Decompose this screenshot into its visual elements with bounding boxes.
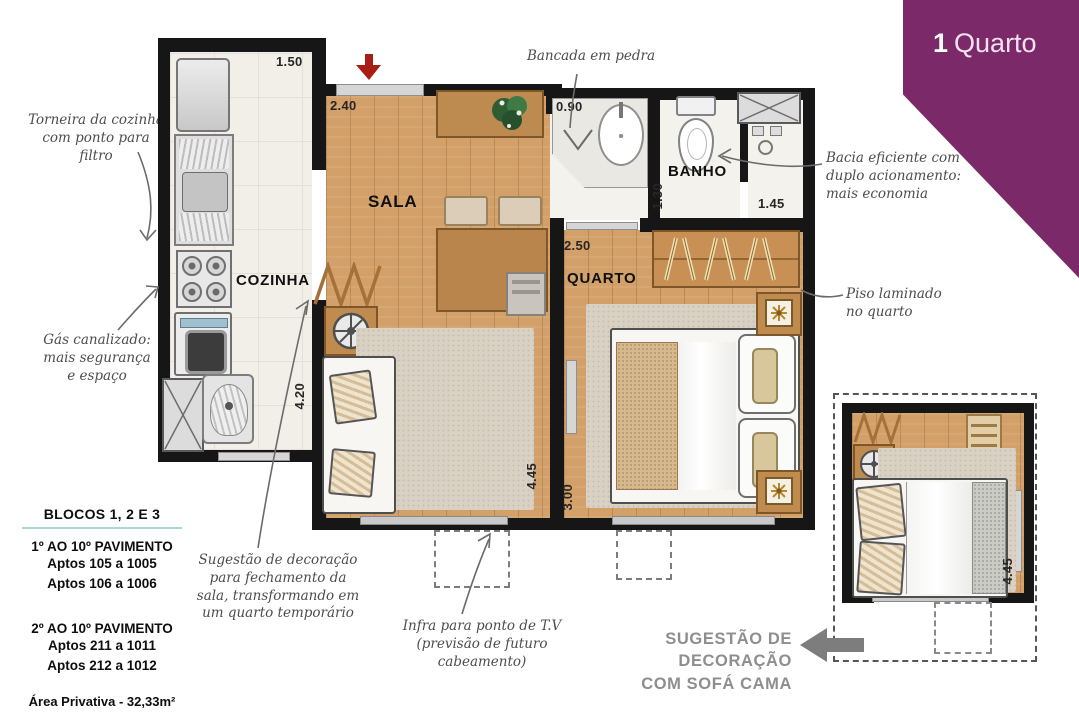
washing-machine: [174, 312, 232, 376]
label-cozinha: COZINHA: [236, 272, 310, 289]
counter-chevron-icon: [562, 128, 594, 152]
quarto-sliding-door: [566, 222, 638, 230]
nightstand: [756, 292, 802, 336]
wall-kitchen-right-upper: [312, 38, 326, 170]
kitchen-shaft: [162, 378, 204, 452]
dim-kitchen-length: 4.20: [292, 383, 307, 410]
note-piso: Piso laminado no quarto: [846, 286, 966, 322]
service-window: [218, 452, 290, 461]
sofa-bed-open: [852, 478, 1008, 598]
inset-infra-box: [934, 602, 992, 654]
floorplan-page: 1Quarto: [0, 0, 1079, 720]
note-infra: Infra para ponto de T.V (previsão de fut…: [394, 618, 570, 671]
dim-shower: 1.45: [758, 196, 785, 211]
label-banho: BANHO: [668, 163, 727, 180]
tv-rack: [506, 272, 546, 316]
info-line: Aptos 212 a 1012: [16, 656, 188, 676]
hangers-icon: [654, 232, 798, 286]
dim-sala-length: 4.45: [524, 463, 539, 490]
entry-arrow-icon: [356, 54, 382, 80]
sofa-cama-arrow-icon: [800, 626, 864, 664]
sink-basin: [182, 172, 228, 212]
dim-banho-width: 1.30: [650, 183, 665, 210]
sink-drain: [619, 134, 623, 138]
faucet: [619, 102, 623, 118]
leader-gas: [118, 289, 156, 330]
dim-counter: 0.90: [556, 99, 583, 114]
tank-drain: [225, 402, 233, 410]
bed-sheet: [678, 342, 736, 490]
x-hatch-icon: [739, 94, 799, 122]
leader-torneira-arrow: [140, 230, 156, 240]
quarto-window: [612, 516, 775, 525]
accent-pillow: [752, 348, 778, 404]
sofa: [322, 356, 396, 514]
sofa-bed-pillow: [855, 483, 906, 542]
bathroom-sink: [598, 104, 644, 166]
sofa-cushion: [328, 448, 376, 498]
dim-sala-width: 2.40: [330, 98, 357, 113]
laundry-tank: [202, 374, 254, 444]
sofa-cushion: [329, 369, 378, 424]
tank-bowl: [210, 384, 248, 436]
inset-wall-left: [842, 403, 852, 603]
shower-valve: [752, 126, 764, 136]
info-heading-1: 1º AO 10º PAVIMENTO: [16, 539, 188, 554]
inset-divider-screen: [852, 412, 908, 444]
stool: [444, 196, 488, 226]
teal-rule: [22, 527, 182, 529]
nightstand: [756, 470, 802, 514]
stove: [176, 250, 232, 308]
building-info-block: BLOCOS 1, 2 E 3 1º AO 10º PAVIMENTO Apto…: [16, 506, 188, 709]
note-bancada: Bancada em pedra: [516, 48, 666, 66]
fridge: [176, 58, 230, 132]
shower-valve: [770, 126, 782, 136]
leader-gas-arrow: [146, 286, 158, 298]
bath-shaft: [737, 92, 801, 124]
sala-window: [360, 516, 508, 525]
washer-door: [185, 330, 227, 374]
stool: [498, 196, 542, 226]
plant: [484, 88, 534, 138]
toilet-seat: [687, 128, 707, 160]
dim-kitchen-width: 1.50: [276, 54, 303, 69]
entry-door: [336, 84, 424, 96]
sofa-bed-mattress: [906, 482, 973, 594]
dim-quarto-width: 2.50: [564, 238, 591, 253]
banner-title: 1Quarto: [933, 28, 1037, 59]
sofa-bed-pillow: [856, 540, 906, 595]
banner-number: 1: [933, 28, 948, 58]
shelf-line: [971, 444, 997, 447]
note-bacia: Bacia eficiente com duplo acionamento: m…: [826, 150, 976, 203]
inset-wall-right: [1024, 403, 1034, 603]
note-fechamento: Sugestão de decoração para fechamento da…: [190, 552, 366, 623]
info-line: Aptos 105 a 1005: [16, 554, 188, 574]
banner-word: Quarto: [954, 28, 1037, 58]
room-divider-screen: [312, 262, 390, 306]
shelf-line: [971, 434, 997, 437]
bed-blanket: [616, 342, 678, 490]
shower-drain: [758, 140, 773, 155]
drainboard: [179, 139, 229, 169]
dim-inset-length: 4.45: [1000, 558, 1015, 585]
burners-icon: [178, 252, 230, 306]
note-gas: Gás canalizado: mais segurança e espaço: [28, 332, 166, 385]
quarto-infra-box: [616, 530, 672, 580]
info-line: Aptos 211 a 1011: [16, 636, 188, 656]
sofa-cama-caption: SUGESTÃO DE DECORAÇÃO COM SOFÁ CAMA: [560, 628, 792, 695]
drainboard: [179, 213, 229, 241]
dim-quarto-length: 3.00: [560, 484, 575, 511]
rack-shelf: [512, 280, 540, 284]
tv-infra-box: [434, 530, 510, 588]
label-sala: SALA: [368, 192, 417, 212]
wardrobe: [652, 230, 800, 288]
wall-kitchen-top: [158, 38, 326, 52]
toilet-tank: [676, 96, 716, 116]
info-line: Aptos 106 a 1006: [16, 574, 188, 594]
plan-type-banner: 1Quarto: [903, 0, 1079, 278]
washer-panel: [180, 318, 228, 328]
lamp-icon: [758, 294, 800, 334]
x-hatch-icon: [164, 380, 202, 450]
kitchen-sink-counter: [174, 134, 234, 246]
lamp-icon: [758, 472, 800, 512]
label-quarto: QUARTO: [567, 270, 637, 287]
info-heading-2: 2º AO 10º PAVIMENTO: [16, 621, 188, 636]
info-private-area: Área Privativa - 32,33m²: [16, 694, 188, 709]
note-torneira: Torneira da cozinha com ponto para filtr…: [24, 112, 168, 165]
info-title: BLOCOS 1, 2 E 3: [16, 506, 188, 522]
wall-right-outer: [803, 88, 815, 530]
quarto-pocket-door-leaf: [566, 360, 577, 434]
rack-shelf: [512, 290, 540, 294]
shelf-line: [971, 424, 997, 427]
